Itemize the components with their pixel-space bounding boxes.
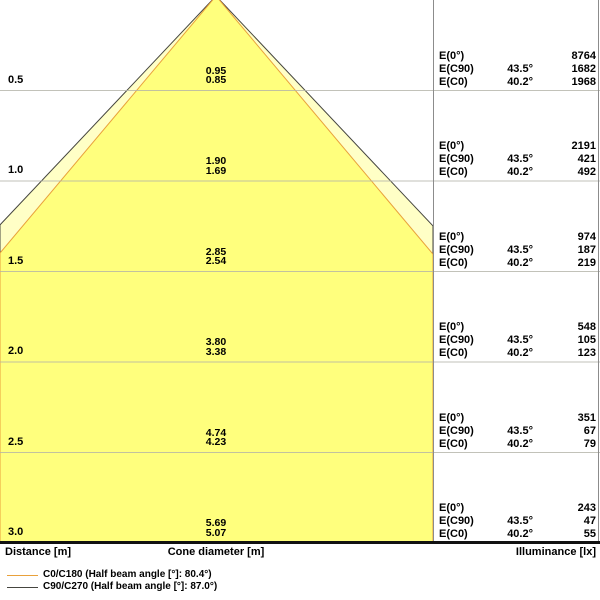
distance-tick-label: 2.5 [8, 436, 23, 449]
c90c270-line-swatch [7, 587, 38, 588]
c0c180-legend-label: C0/C180 (Half beam angle [°]: 80.4°) [43, 569, 212, 581]
legend-item-c0c180: C0/C180 (Half beam angle [°]: 80.4°) [0, 569, 217, 581]
e-label: E(0°) [439, 412, 499, 425]
illuminance-value: 2191 [533, 140, 596, 153]
cone-diameter-values: 4.744.23 [181, 429, 251, 448]
legend-item-c90c270: C90/C270 (Half beam angle [°]: 87.0°) [0, 581, 217, 593]
cone-diameter-c0-value: 4.23 [181, 438, 251, 448]
c90c270-legend-label: C90/C270 (Half beam angle [°]: 87.0°) [43, 581, 217, 593]
illuminance-group: E(0°)548E(C90)43.5°105E(C0)40.2°123 [439, 321, 596, 360]
illuminance-row: E(C90)43.5°1682 [439, 63, 596, 76]
half-angle-value [499, 321, 533, 334]
half-angle-value: 43.5° [499, 153, 533, 166]
half-angle-value: 43.5° [499, 334, 533, 347]
illuminance-row: E(C90)43.5°47 [439, 515, 596, 528]
e-label: E(C90) [439, 63, 499, 76]
bottom-axis-line [0, 541, 600, 544]
illuminance-row: E(0°)8764 [439, 50, 596, 63]
half-angle-value: 40.2° [499, 76, 533, 89]
cone-diameter-values: 1.901.69 [181, 157, 251, 176]
illuminance-group: E(0°)974E(C90)43.5°187E(C0)40.2°219 [439, 231, 596, 270]
illuminance-value: 492 [533, 166, 596, 179]
illuminance-row: E(0°)548 [439, 321, 596, 334]
e-label: E(C0) [439, 347, 499, 360]
illuminance-row: E(0°)243 [439, 502, 596, 515]
e-label: E(C0) [439, 528, 499, 541]
half-angle-value [499, 502, 533, 515]
illuminance-group: E(0°)351E(C90)43.5°67E(C0)40.2°79 [439, 412, 596, 451]
distance-tick-label: 0.5 [8, 74, 23, 87]
e-label: E(0°) [439, 50, 499, 63]
c0c180-line-swatch [7, 575, 38, 576]
half-angle-value: 40.2° [499, 257, 533, 270]
distance-tick-label: 3.0 [8, 526, 23, 539]
e-label: E(0°) [439, 321, 499, 334]
cone-diameter-c0-value: 3.38 [181, 348, 251, 358]
half-angle-value: 40.2° [499, 528, 533, 541]
illuminance-group: E(0°)243E(C90)43.5°47E(C0)40.2°55 [439, 502, 596, 541]
cone-diameter-values: 3.803.38 [181, 338, 251, 357]
half-angle-value [499, 231, 533, 244]
half-angle-value: 40.2° [499, 438, 533, 451]
illuminance-value: 351 [533, 412, 596, 425]
cone-diameter-values: 2.852.54 [181, 248, 251, 267]
illuminance-row: E(C0)40.2°1968 [439, 76, 596, 89]
half-angle-value [499, 412, 533, 425]
illuminance-value: 243 [533, 502, 596, 515]
cone-diameter-c0-value: 1.69 [181, 167, 251, 177]
cone-diameter-c0-value: 0.85 [181, 76, 251, 86]
illuminance-value: 548 [533, 321, 596, 334]
e-label: E(0°) [439, 140, 499, 153]
distance-axis-label: Distance [m] [5, 546, 71, 559]
illuminance-value: 55 [533, 528, 596, 541]
distance-tick-label: 1.0 [8, 164, 23, 177]
illuminance-group: E(0°)2191E(C90)43.5°421E(C0)40.2°492 [439, 140, 596, 179]
e-label: E(C0) [439, 166, 499, 179]
illuminance-axis-label: Illuminance [lx] [516, 546, 596, 559]
e-label: E(C0) [439, 257, 499, 270]
illuminance-row: E(C90)43.5°67 [439, 425, 596, 438]
illuminance-value: 123 [533, 347, 596, 360]
illuminance-value: 67 [533, 425, 596, 438]
half-angle-value: 40.2° [499, 347, 533, 360]
illuminance-row: E(C90)43.5°105 [439, 334, 596, 347]
e-label: E(C0) [439, 76, 499, 89]
illuminance-row: E(C0)40.2°219 [439, 257, 596, 270]
cone-diameter-c0-value: 2.54 [181, 257, 251, 267]
legend: C0/C180 (Half beam angle [°]: 80.4°) C90… [0, 569, 217, 593]
half-angle-value: 43.5° [499, 425, 533, 438]
cone-diameter-c0-value: 5.07 [181, 529, 251, 539]
e-label: E(C90) [439, 425, 499, 438]
illuminance-value: 8764 [533, 50, 596, 63]
e-label: E(C0) [439, 438, 499, 451]
half-angle-value: 43.5° [499, 244, 533, 257]
illuminance-value: 974 [533, 231, 596, 244]
e-label: E(C90) [439, 515, 499, 528]
illuminance-row: E(C0)40.2°492 [439, 166, 596, 179]
e-label: E(C90) [439, 244, 499, 257]
distance-tick-label: 1.5 [8, 255, 23, 268]
illuminance-value: 219 [533, 257, 596, 270]
half-angle-value [499, 50, 533, 63]
cone-diameter-values: 5.695.07 [181, 519, 251, 538]
illuminance-row: E(0°)2191 [439, 140, 596, 153]
distance-tick-label: 2.0 [8, 345, 23, 358]
axis-label-row: Distance [m] Cone diameter [m] Illuminan… [0, 546, 600, 560]
e-label: E(0°) [439, 502, 499, 515]
illuminance-row: E(C90)43.5°187 [439, 244, 596, 257]
illuminance-value: 1968 [533, 76, 596, 89]
illuminance-row: E(0°)351 [439, 412, 596, 425]
e-label: E(0°) [439, 231, 499, 244]
half-angle-value: 43.5° [499, 63, 533, 76]
illuminance-value: 79 [533, 438, 596, 451]
e-label: E(C90) [439, 153, 499, 166]
illuminance-row: E(C90)43.5°421 [439, 153, 596, 166]
illuminance-row: E(C0)40.2°55 [439, 528, 596, 541]
illuminance-value: 47 [533, 515, 596, 528]
illuminance-row: E(0°)974 [439, 231, 596, 244]
light-cone-diagram: 0.50.950.85E(0°)8764E(C90)43.5°1682E(C0)… [0, 0, 600, 600]
half-angle-value: 40.2° [499, 166, 533, 179]
illuminance-row: E(C0)40.2°123 [439, 347, 596, 360]
illuminance-group: E(0°)8764E(C90)43.5°1682E(C0)40.2°1968 [439, 50, 596, 89]
illuminance-value: 1682 [533, 63, 596, 76]
half-angle-value [499, 140, 533, 153]
cone-diameter-axis-label: Cone diameter [m] [116, 546, 316, 559]
illuminance-value: 187 [533, 244, 596, 257]
cone-diameter-values: 0.950.85 [181, 67, 251, 86]
illuminance-value: 421 [533, 153, 596, 166]
half-angle-value: 43.5° [499, 515, 533, 528]
illuminance-value: 105 [533, 334, 596, 347]
e-label: E(C90) [439, 334, 499, 347]
illuminance-row: E(C0)40.2°79 [439, 438, 596, 451]
